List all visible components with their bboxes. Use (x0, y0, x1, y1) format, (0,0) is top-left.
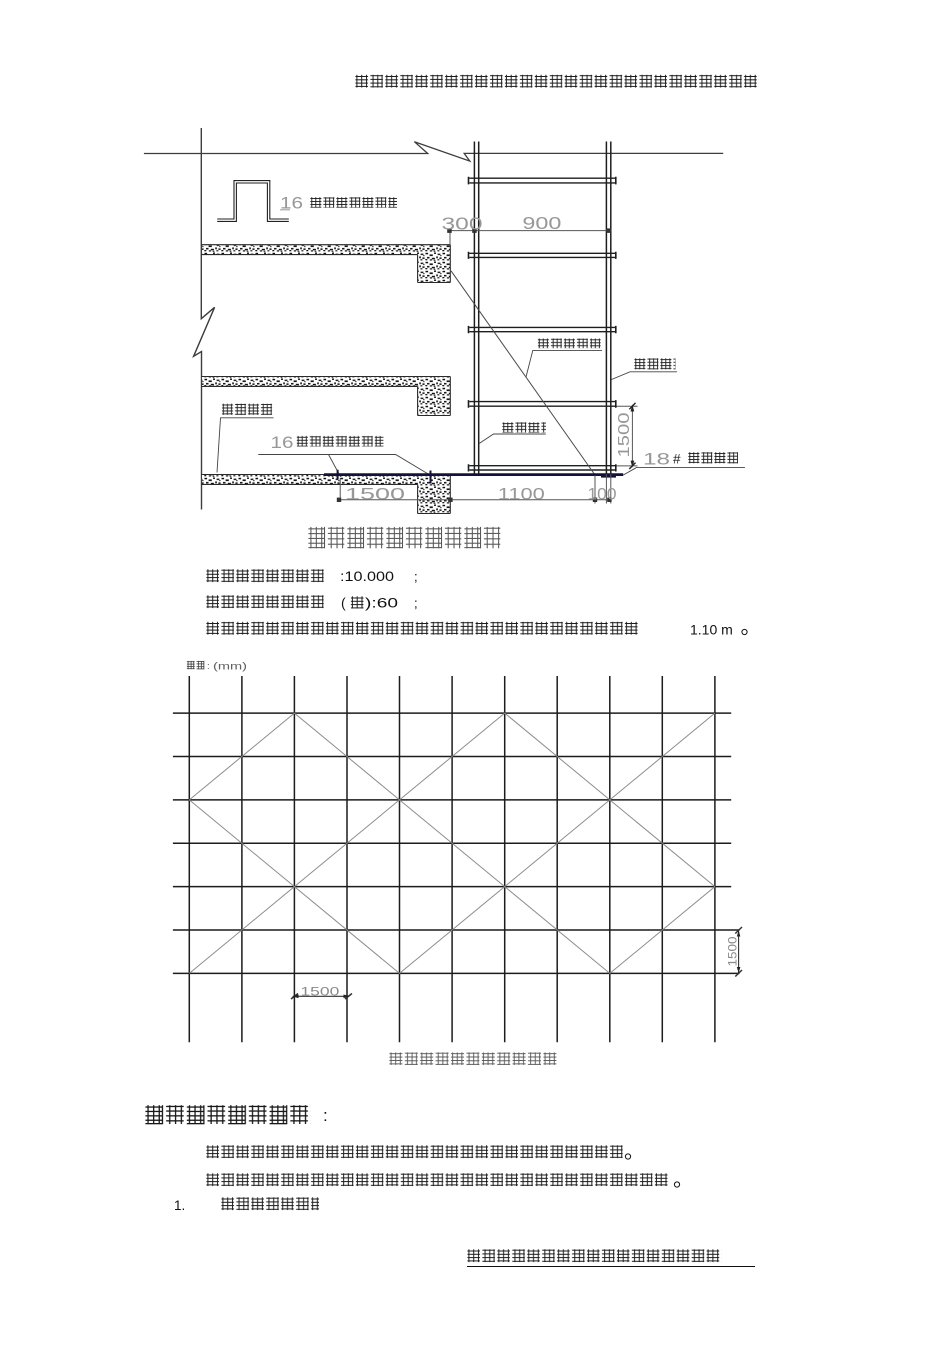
svg-text:#: # (673, 452, 681, 467)
svg-text:16: 16 (271, 433, 294, 452)
svg-text:1500: 1500 (345, 484, 405, 503)
svg-text:):60: ):60 (365, 595, 398, 611)
svg-text:1100: 1100 (498, 484, 545, 503)
svg-text:100: 100 (588, 484, 617, 503)
svg-text:(: ( (341, 595, 346, 611)
svg-text:1500: 1500 (300, 986, 339, 998)
svg-text:900: 900 (522, 213, 561, 233)
svg-text:1.: 1. (174, 1198, 185, 1213)
svg-text:1.10 m: 1.10 m (690, 622, 733, 638)
svg-text:(mm): (mm) (213, 661, 247, 673)
svg-text::10.000: :10.000 (340, 568, 394, 584)
svg-text::: : (207, 661, 210, 672)
svg-text:300: 300 (442, 213, 483, 233)
svg-text:1500: 1500 (616, 412, 633, 457)
svg-text::: : (323, 1106, 328, 1125)
svg-text:18: 18 (643, 450, 670, 469)
svg-text:1500: 1500 (726, 936, 740, 966)
svg-text:;: ; (414, 596, 418, 611)
svg-text:;: ; (414, 569, 418, 584)
